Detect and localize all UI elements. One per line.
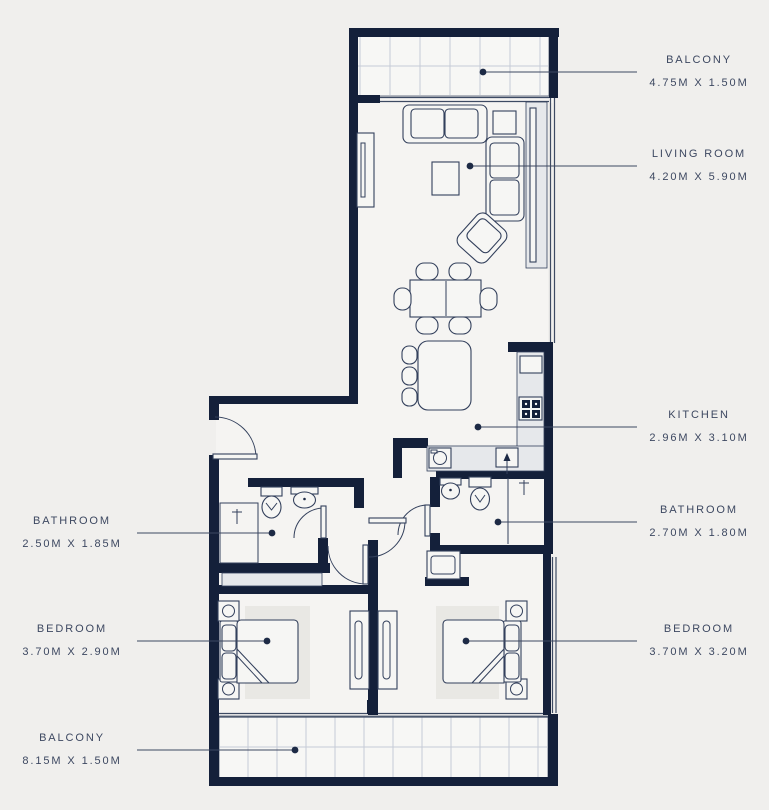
washbasin <box>440 478 461 499</box>
stool <box>402 367 417 385</box>
kitchen-island <box>418 341 471 410</box>
room-label-bedroom-left: BEDROOM 3.70M X 2.90M <box>6 618 138 664</box>
chair <box>416 263 438 280</box>
room-dimensions: 8.15M X 1.50M <box>6 750 138 773</box>
side-table <box>493 111 516 134</box>
closet-niche <box>222 573 322 586</box>
room-dimensions: 2.96M X 3.10M <box>636 427 762 450</box>
sofa-right <box>486 137 524 221</box>
washing-machine <box>429 448 451 468</box>
room-label-living-room: LIVING ROOM 4.20M X 5.90M <box>636 143 762 189</box>
room-name: BALCONY <box>6 727 138 750</box>
room-dimensions: 2.50M X 1.85M <box>6 533 138 556</box>
chair <box>394 288 411 310</box>
chair <box>449 317 471 334</box>
stove <box>519 397 542 420</box>
room-label-balcony-top: BALCONY 4.75M X 1.50M <box>636 49 762 95</box>
fridge <box>520 356 542 373</box>
room-name: BALCONY <box>636 49 762 72</box>
room-label-bathroom-left: BATHROOM 2.50M X 1.85M <box>6 510 138 556</box>
room-name: BEDROOM <box>636 618 762 641</box>
wardrobe <box>350 611 369 689</box>
room-label-balcony-bottom: BALCONY 8.15M X 1.50M <box>6 727 138 773</box>
room-dimensions: 4.20M X 5.90M <box>636 166 762 189</box>
room-label-kitchen: KITCHEN 2.96M X 3.10M <box>636 404 762 450</box>
balcony-bottom-tiles <box>219 716 548 778</box>
room-name: BEDROOM <box>6 618 138 641</box>
sofa-top <box>403 105 487 143</box>
balcony-top-tiles <box>357 36 549 96</box>
washbasin <box>291 487 318 508</box>
bed <box>220 620 298 683</box>
chair <box>449 263 471 280</box>
dresser <box>427 551 460 579</box>
bed <box>443 620 521 683</box>
room-dimensions: 4.75M X 1.50M <box>636 72 762 95</box>
room-label-bedroom-right: BEDROOM 3.70M X 3.20M <box>636 618 762 664</box>
coffee-table <box>432 162 459 195</box>
stool <box>402 346 417 364</box>
room-name: BATHROOM <box>6 510 138 533</box>
room-name: KITCHEN <box>636 404 762 427</box>
room-name: BATHROOM <box>636 499 762 522</box>
room-name: LIVING ROOM <box>636 143 762 166</box>
room-dimensions: 3.70M X 3.20M <box>636 641 762 664</box>
nightstand <box>506 601 527 621</box>
nightstand <box>218 601 239 621</box>
floor-plan: BALCONY 4.75M X 1.50M LIVING ROOM 4.20M … <box>0 0 769 810</box>
stool <box>402 388 417 406</box>
chair <box>480 288 497 310</box>
toilet <box>469 477 491 510</box>
wardrobe <box>378 611 397 689</box>
toilet <box>261 487 282 518</box>
room-dimensions: 2.70M X 1.80M <box>636 522 762 545</box>
room-label-bathroom-right: BATHROOM 2.70M X 1.80M <box>636 499 762 545</box>
room-dimensions: 3.70M X 2.90M <box>6 641 138 664</box>
chair <box>416 317 438 334</box>
